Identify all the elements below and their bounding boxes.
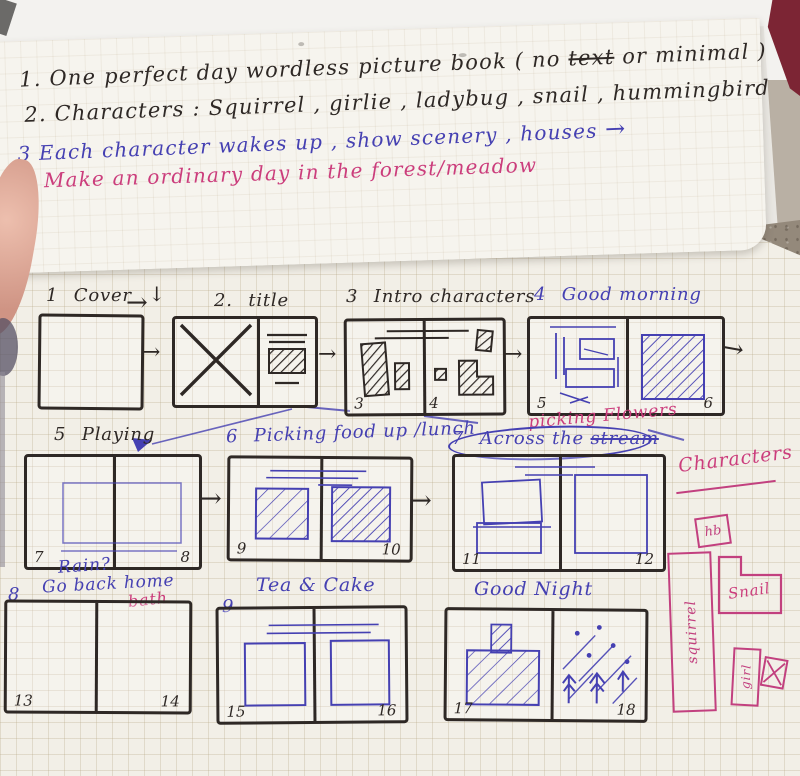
frame1-number: 1 (46, 285, 58, 306)
frame3-title: Intro characters (374, 286, 535, 307)
frame3-label: 3 Intro characters (346, 286, 535, 307)
page-number: 5 (537, 394, 547, 412)
frame2-number: 2. (214, 290, 233, 311)
title-spread-frame (172, 316, 318, 408)
frame5-title: Playing (82, 424, 155, 445)
across-stream-sketch (455, 457, 663, 569)
ink-smudge (298, 42, 304, 46)
squirrel-box: squirrel (667, 551, 717, 712)
frame7-number: 7 (452, 428, 464, 449)
page-number: 12 (635, 550, 654, 568)
squirrel-label: squirrel (683, 600, 701, 664)
note-1-text-b: or minimal ) (614, 39, 767, 69)
page-number: 16 (377, 701, 396, 719)
tea-cake-frame: 15 16 (215, 605, 408, 725)
right-arrow-icon: → (142, 342, 160, 364)
frame7-label: 7 Across the stream (452, 428, 659, 449)
page-number: 15 (226, 703, 245, 721)
right-arrow-icon: → (720, 334, 746, 363)
girl-label: girl (738, 664, 753, 690)
page-number: 7 (34, 548, 44, 566)
down-arrow-icon: ↓ (148, 282, 166, 306)
girl-box: girl (731, 647, 762, 706)
note-1-struck-word: text (568, 45, 615, 71)
right-arrow-icon: → (318, 344, 336, 366)
playing-frame: 7 8 (24, 454, 202, 570)
note-1-number: 1. (19, 67, 42, 92)
good-morning-sketch (530, 319, 722, 413)
page-number: 14 (161, 692, 180, 710)
page-number: 11 (462, 550, 481, 568)
frame2-label: 2. title (214, 290, 289, 311)
page-number: 6 (703, 394, 713, 412)
storyboard: 1 Cover ↓ → 2. title 3 Intro characters … (0, 210, 800, 776)
frame2-title: title (248, 290, 289, 311)
page-number: 4 (429, 394, 439, 412)
frame1-label: 1 Cover ↓ (46, 284, 166, 306)
good-night-frame: 17 18 (444, 607, 649, 723)
frame3-number: 3 (346, 286, 358, 307)
hummingbird-label: hb (704, 522, 723, 539)
rain-frame: 13 14 (4, 600, 193, 715)
hummingbird-box: hb (694, 514, 732, 548)
right-arrow-icon: → (504, 344, 522, 366)
right-arrow-icon: → (200, 486, 222, 512)
frame7-title: Across the (480, 428, 591, 449)
frame4-title: Good morning (562, 284, 702, 305)
frame4-number: 4 (534, 284, 546, 305)
page-number: 18 (616, 701, 635, 719)
frame6-number: 6 (226, 426, 239, 447)
page-number: 3 (354, 394, 364, 412)
page-number: 17 (454, 699, 473, 717)
frame5-label: 5 Playing (54, 424, 155, 445)
playing-sketch (27, 457, 199, 567)
frame7-title-struck: stream (591, 428, 659, 449)
right-arrow-icon: → (410, 488, 432, 514)
page-number: 8 (180, 548, 190, 566)
intro-characters-frame: 3 4 (344, 317, 507, 416)
right-arrow-icon: → (126, 290, 148, 316)
picking-food-frame: 9 10 (227, 455, 414, 562)
frame1-title: Cover (74, 285, 132, 306)
page-number: 9 (237, 539, 247, 557)
cover-sketch-frame (38, 313, 145, 410)
intro-characters-sketch (347, 320, 504, 413)
frame5-number: 5 (54, 424, 66, 445)
note-1-text-a: One perfect day wordless picture book ( … (49, 47, 569, 91)
page-number: 13 (14, 692, 33, 710)
frame4-label: 4 Good morning (534, 284, 702, 305)
spread-gutter (95, 603, 99, 711)
page-number: 10 (382, 540, 401, 558)
frame10-label: Good Night (474, 578, 593, 600)
ladybug-box (760, 654, 790, 694)
good-morning-frame: 5 6 (527, 316, 725, 416)
title-page-sketch (175, 319, 315, 405)
across-stream-frame: 11 12 (452, 454, 666, 572)
frame9-label: Tea & Cake (256, 574, 375, 596)
right-arrow-icon: → (605, 114, 626, 143)
notebook-photo: 1. One perfect day wordless picture book… (0, 0, 800, 776)
